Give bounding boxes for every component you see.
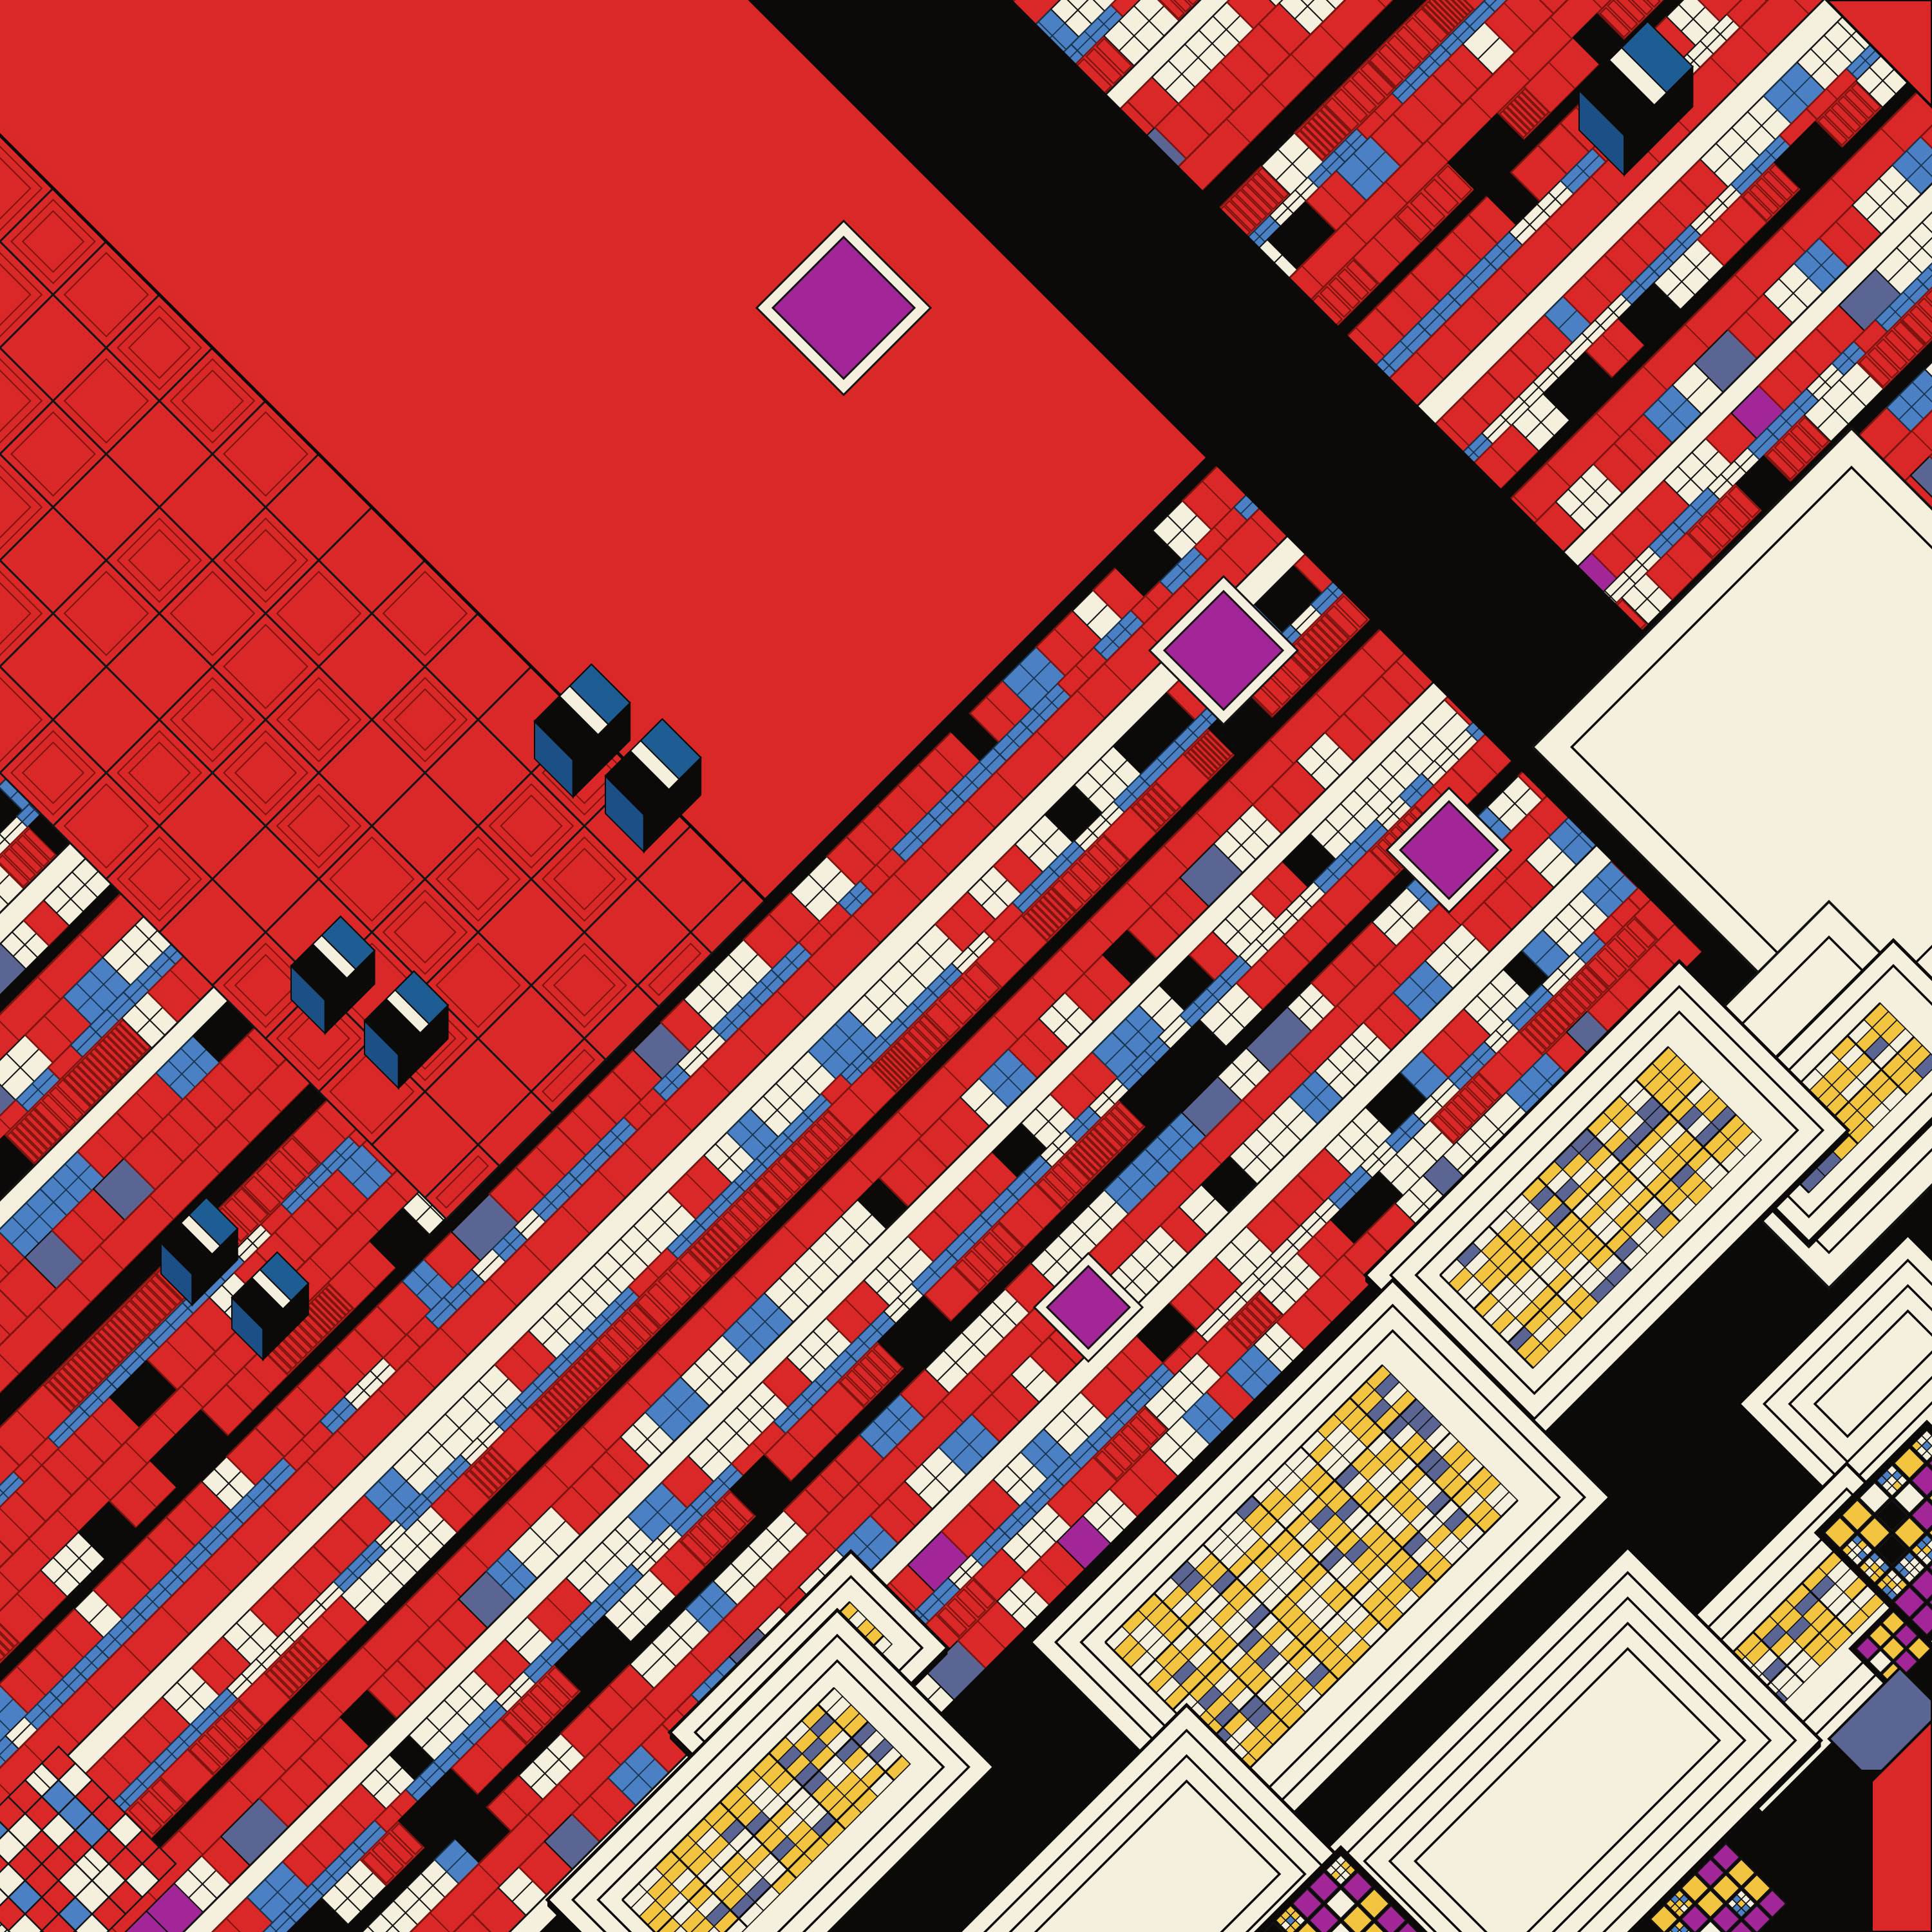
artwork-frame: [0, 0, 1932, 1932]
artwork-canvas: [0, 0, 1932, 1932]
